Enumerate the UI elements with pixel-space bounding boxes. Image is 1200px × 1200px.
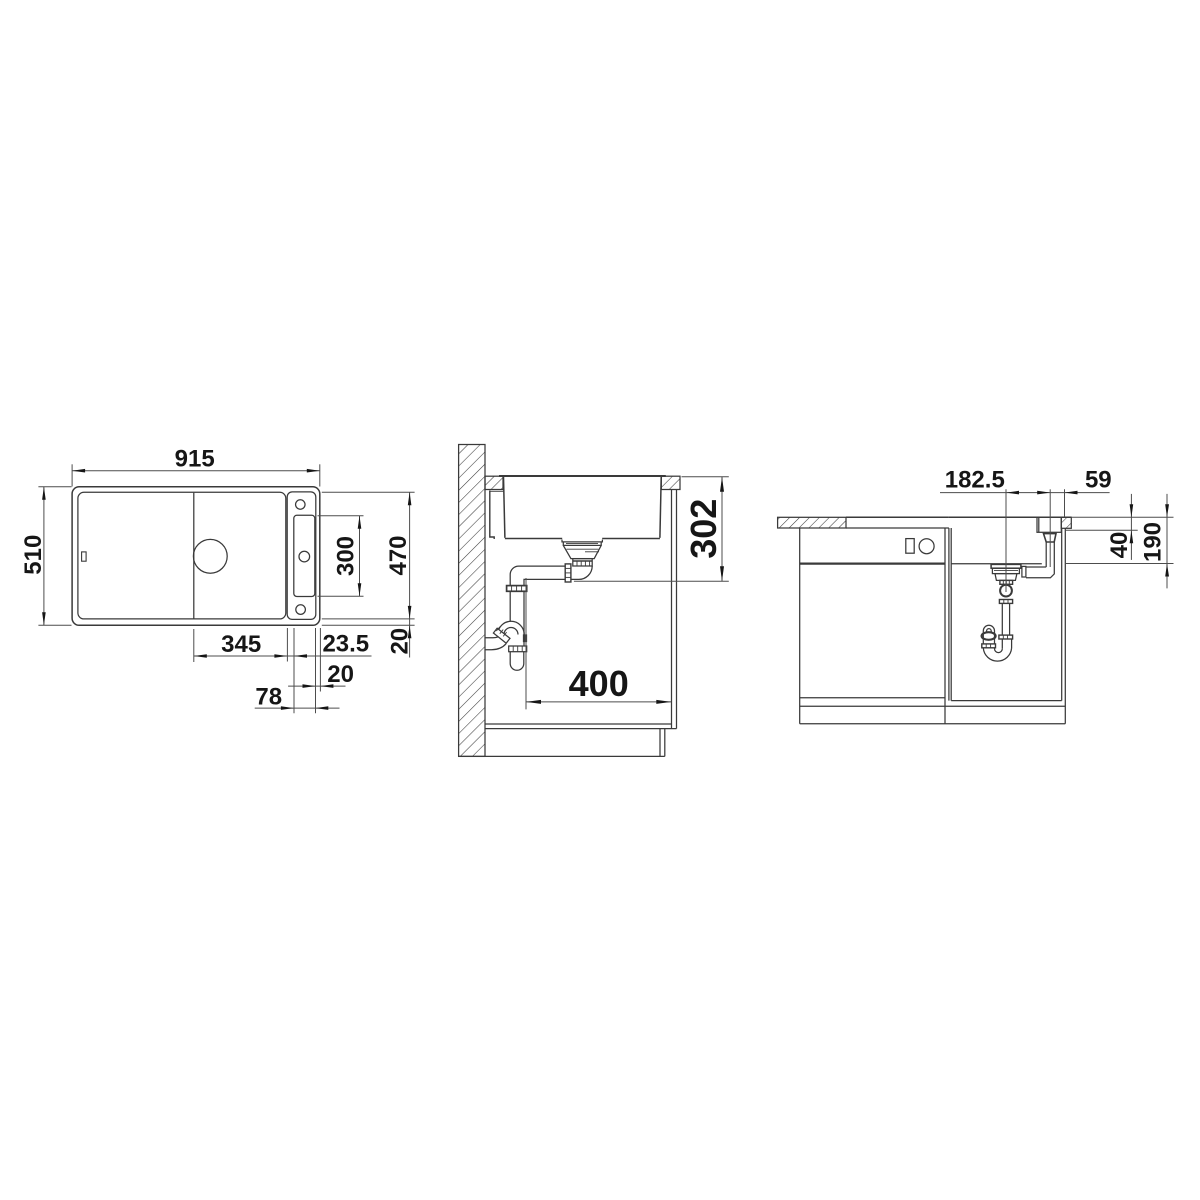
svg-text:40: 40 (1106, 532, 1133, 559)
svg-text:59: 59 (1085, 467, 1112, 494)
svg-text:20: 20 (327, 661, 354, 688)
svg-text:182.5: 182.5 (945, 467, 1005, 494)
svg-text:20: 20 (386, 628, 413, 655)
svg-text:78: 78 (255, 684, 282, 711)
svg-text:190: 190 (1140, 522, 1167, 562)
svg-text:23.5: 23.5 (322, 631, 369, 658)
svg-text:345: 345 (221, 631, 261, 658)
svg-text:470: 470 (385, 535, 412, 575)
svg-text:302: 302 (683, 499, 724, 559)
svg-text:400: 400 (569, 663, 629, 704)
svg-text:510: 510 (20, 535, 47, 575)
svg-text:915: 915 (175, 445, 215, 472)
svg-text:300: 300 (333, 536, 360, 576)
